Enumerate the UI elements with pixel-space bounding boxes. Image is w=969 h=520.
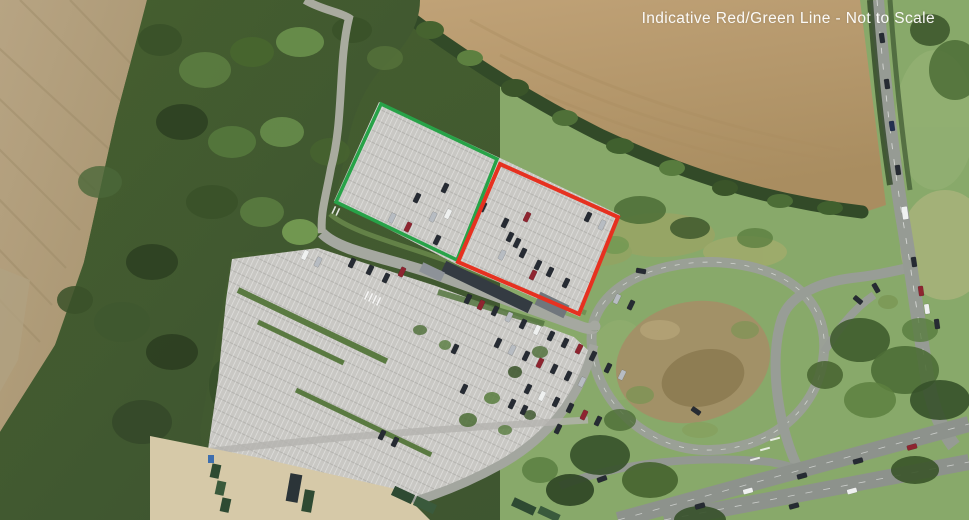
aerial-screenshot: Indicative Red/Green Line - Not to Scale — [0, 0, 969, 520]
annotation-label: Indicative Red/Green Line - Not to Scale — [642, 10, 935, 28]
aerial-photo-canvas — [0, 0, 969, 520]
